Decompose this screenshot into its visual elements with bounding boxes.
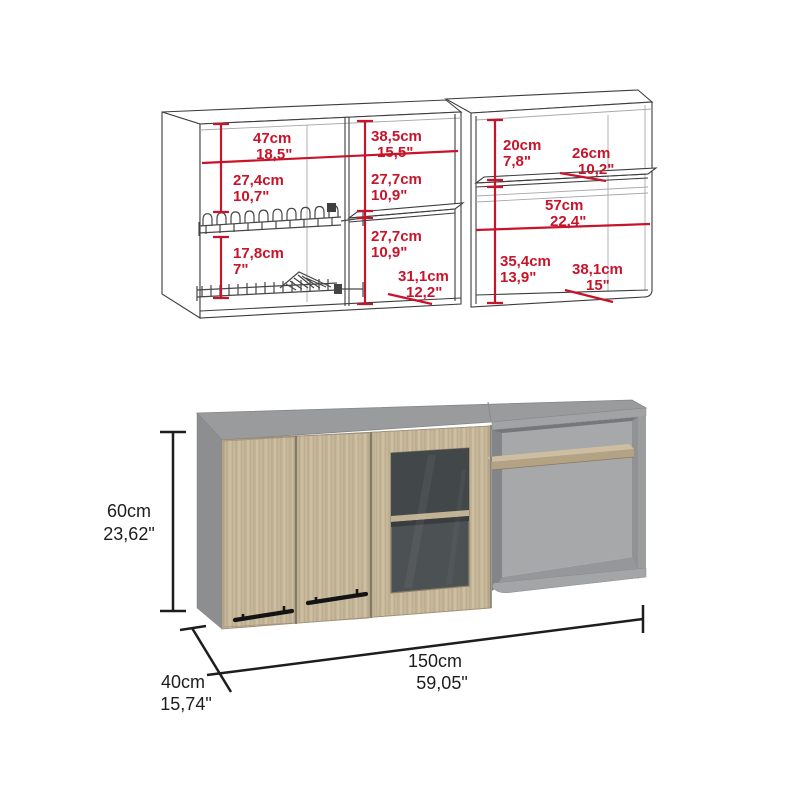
dim-right-width-cm: 57cm [545, 197, 583, 214]
height-label-cm: 60cm [107, 501, 151, 521]
technical-drawing: 47cm 18,5" 38,5cm 15,5" 27,4cm 10,7" 27,… [162, 90, 656, 318]
dim-left-width-cm: 47cm [253, 130, 291, 147]
section-back-wall [502, 421, 632, 577]
dim-between-racks-cm: 17,8cm [233, 245, 284, 262]
product-dimension-image: 47cm 18,5" 38,5cm 15,5" 27,4cm 10,7" 27,… [0, 0, 800, 800]
depth-label-in: 15,74" [160, 694, 211, 714]
dim-center-depth-cm: 31,1cm [398, 268, 449, 285]
height-dimension-line [160, 432, 186, 611]
glass-pane [391, 448, 469, 593]
diagram-svg: 47cm 18,5" 38,5cm 15,5" 27,4cm 10,7" 27,… [0, 0, 800, 800]
cabinet-3d-render: 60cm 23,62" 40cm 15,74" 150cm 59,05" [103, 400, 646, 714]
dim-right-width-in: 22,4" [550, 213, 586, 230]
dim-center-upper-cm: 27,7cm [371, 171, 422, 188]
height-label-in: 23,62" [103, 524, 154, 544]
dim-right-lower-in: 13,9" [500, 269, 536, 286]
dim-shelf-depth-in: 10,2" [578, 161, 614, 178]
width-label-cm: 150cm [408, 651, 462, 671]
dim-bottom-depth-in: 15" [586, 277, 610, 294]
dim-left-width-in: 18,5" [256, 146, 292, 163]
dim-right-upper-cm: 20cm [503, 137, 541, 154]
depth-label-cm: 40cm [161, 672, 205, 692]
dim-right-upper-in: 7,8" [503, 153, 531, 170]
dim-center-lower-cm: 27,7cm [371, 228, 422, 245]
dim-top-to-rack-in: 10,7" [233, 188, 269, 205]
dim-center-lower-in: 10,9" [371, 244, 407, 261]
cabinet-left-side [197, 413, 222, 629]
dim-top-to-rack-cm: 27,4cm [233, 172, 284, 189]
dim-center-depth-in: 12,2" [406, 284, 442, 301]
dim-shelf-depth-cm: 26cm [572, 145, 610, 162]
dim-right-lower-cm: 35,4cm [500, 253, 551, 270]
open-shelf-section [487, 408, 646, 608]
dim-between-racks-in: 7" [233, 261, 248, 278]
dim-center-upper-in: 10,9" [371, 187, 407, 204]
left-cabinet-side-face [162, 112, 200, 318]
dim-bottom-depth-cm: 38,1cm [572, 261, 623, 278]
dim-center-width-in: 15,5" [377, 144, 413, 161]
door-front [222, 426, 491, 629]
width-label-in: 59,05" [416, 673, 467, 693]
dim-center-width-cm: 38,5cm [371, 128, 422, 145]
